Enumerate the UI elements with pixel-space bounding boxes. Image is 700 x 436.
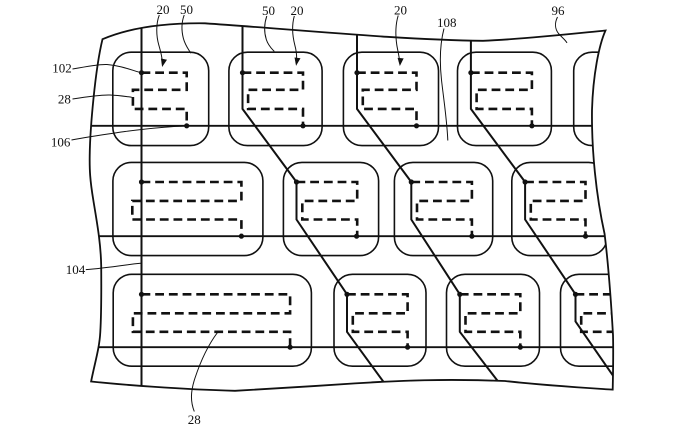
svg-text:28: 28 xyxy=(188,412,201,427)
svg-text:28: 28 xyxy=(58,92,71,107)
svg-text:108: 108 xyxy=(437,15,457,30)
svg-text:102: 102 xyxy=(52,60,72,75)
svg-text:50: 50 xyxy=(262,3,275,18)
svg-text:20: 20 xyxy=(394,2,407,17)
svg-text:104: 104 xyxy=(66,262,86,277)
svg-text:20: 20 xyxy=(157,2,170,17)
svg-text:96: 96 xyxy=(552,3,566,18)
svg-text:20: 20 xyxy=(291,3,304,18)
svg-text:50: 50 xyxy=(180,2,193,17)
svg-text:106: 106 xyxy=(51,135,71,150)
